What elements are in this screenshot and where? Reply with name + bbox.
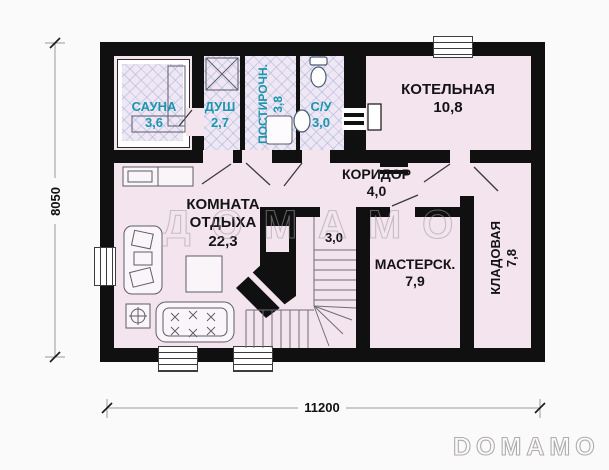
couch-icon bbox=[156, 302, 234, 342]
room-label-wc: С/У 3,0 bbox=[299, 99, 343, 131]
toilet-icon bbox=[310, 57, 327, 87]
room-label-laundry: ПОСТИРОЧН. 3,8 bbox=[252, 57, 288, 151]
dimension-left-value: 8050 bbox=[48, 187, 63, 216]
room-name: ПОСТИРОЧН. bbox=[256, 64, 270, 144]
room-label-boiler: КОТЕЛЬНАЯ 10,8 bbox=[378, 81, 518, 118]
room-label-sauna: САУНА 3,6 bbox=[118, 99, 190, 131]
room-area: 4,0 bbox=[329, 183, 424, 200]
room-name: С/У bbox=[299, 99, 343, 115]
room-name: КОТЕЛЬНАЯ bbox=[378, 81, 518, 99]
room-area: 3,8 bbox=[271, 96, 285, 113]
dimension-left: 8050 bbox=[42, 178, 68, 224]
room-label-corridor: КОРИДОР 4,0 bbox=[329, 166, 424, 200]
shower-tray-icon bbox=[206, 58, 238, 90]
room-area: 7,9 bbox=[366, 273, 464, 290]
brand-logo: DOMAMO bbox=[453, 433, 600, 462]
room-area: 7,8 bbox=[504, 249, 519, 267]
floor-plan-page: { "watermark": {"text": "ДОМАМО"}, "bran… bbox=[0, 0, 609, 470]
room-label-shower: ДУШ 2,7 bbox=[196, 99, 244, 131]
watermark: ДОМАМО bbox=[162, 203, 474, 248]
dimension-bottom: 11200 bbox=[298, 400, 346, 415]
room-area: 3,0 bbox=[299, 115, 343, 131]
sofa-icon bbox=[124, 226, 162, 294]
duct-shaft-icon bbox=[342, 108, 366, 130]
room-area: 2,7 bbox=[196, 115, 244, 131]
room-name: ДУШ bbox=[196, 99, 244, 115]
stove-icon bbox=[126, 304, 150, 328]
room-name: КЛАДОВАЯ bbox=[488, 221, 503, 295]
room-area: 3,6 bbox=[118, 115, 190, 131]
room-name: КОРИДОР bbox=[329, 166, 424, 183]
cabinet-icon bbox=[123, 167, 193, 186]
room-name: МАСТЕРСК. bbox=[366, 256, 464, 273]
room-area: 10,8 bbox=[378, 99, 518, 117]
room-label-storage: КЛАДОВАЯ 7,8 bbox=[488, 206, 518, 310]
room-label-workshop: МАСТЕРСК. 7,9 bbox=[366, 256, 464, 290]
coffee-table-icon bbox=[186, 256, 222, 292]
room-name: САУНА bbox=[118, 99, 190, 115]
